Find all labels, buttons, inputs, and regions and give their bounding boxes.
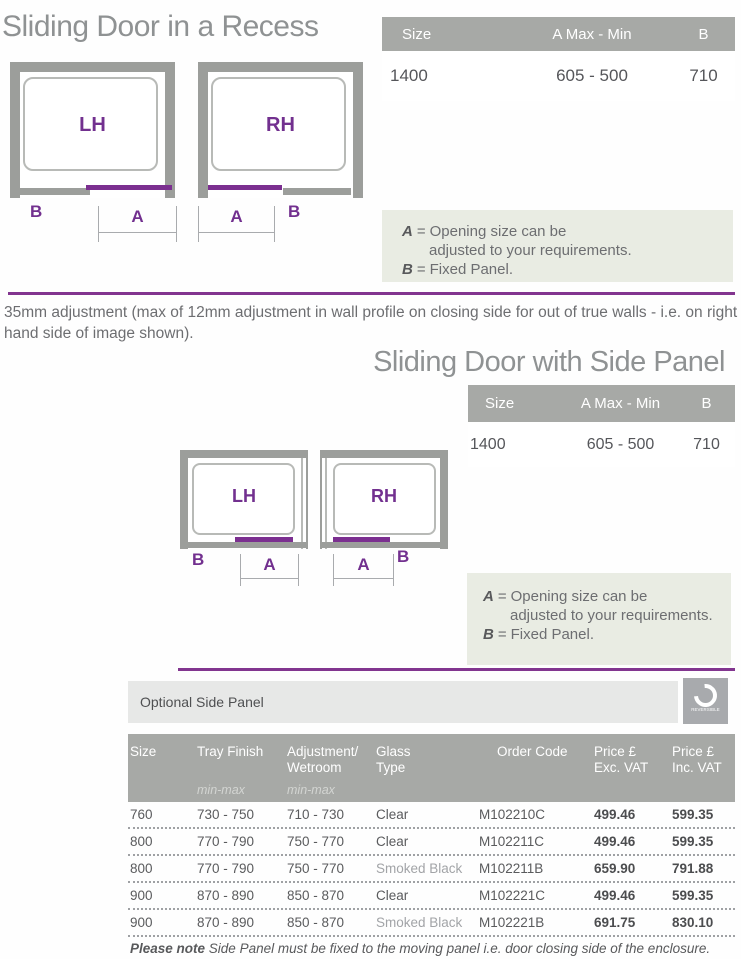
a-max-min-value: 605 - 500	[512, 66, 672, 86]
col-tray-finish: Tray Finishmin-max	[197, 744, 287, 802]
col-price-exc-vat: Price £Exc. VAT	[594, 744, 672, 802]
side-panel-size-table: Size A Max - Min B 1400 605 - 500 710	[468, 385, 735, 467]
sliding-door-bar	[208, 185, 282, 190]
size-value: 1400	[468, 436, 563, 454]
order-code-cell: M102210C	[479, 807, 594, 822]
size-cell: 800	[130, 834, 197, 849]
b-label: B	[30, 202, 42, 222]
note-a-text: Opening size can be	[430, 223, 567, 240]
tray-cell: 770 - 790	[197, 834, 287, 849]
a-label: A	[334, 555, 393, 575]
table-row: 900 870 - 890 850 - 870 Smoked Black M10…	[128, 910, 735, 937]
recess-size-table-header: Size A Max - Min B	[382, 17, 735, 51]
price-inc-cell: 599.35	[672, 834, 735, 849]
price-inc-cell: 830.10	[672, 915, 735, 930]
order-code-cell: M102211B	[479, 861, 594, 876]
key-a: A	[483, 588, 494, 605]
fixed-panel-bar	[20, 188, 90, 195]
a-label: A	[241, 555, 298, 575]
purple-divider	[178, 668, 735, 671]
fixed-panel-bar	[188, 542, 308, 548]
price-inc-cell: 791.88	[672, 861, 735, 876]
equals-sign: =	[498, 626, 507, 643]
table-row: 800 770 - 790 750 - 770 Smoked Black M10…	[128, 856, 735, 883]
note-line-a: A=Opening size can be	[402, 222, 733, 241]
col-a-max-min: A Max - Min	[563, 395, 678, 412]
sliding-door-bar	[333, 537, 390, 542]
col-b: B	[678, 395, 735, 412]
wall-top	[320, 450, 448, 458]
col-glass-type: GlassType	[376, 744, 479, 802]
tray-cell: 870 - 890	[197, 915, 287, 930]
footnote: Please note Side Panel must be fixed to …	[130, 941, 735, 956]
wall-top	[10, 62, 175, 72]
glass-cell: Smoked Black	[376, 915, 479, 930]
side-panel-size-table-header: Size A Max - Min B	[468, 385, 735, 422]
table-row: 1400 605 - 500 710	[468, 422, 735, 467]
fixed-panel-bar	[283, 188, 351, 195]
col-size: Size	[468, 395, 563, 412]
note-line-b: B=Fixed Panel.	[402, 260, 733, 279]
note-line-a: A=Opening size can be	[483, 587, 731, 606]
size-cell: 760	[130, 807, 197, 822]
glass-cell: Clear	[376, 888, 479, 903]
footnote-text: Side Panel must be fixed to the moving p…	[205, 941, 710, 956]
wall-top	[198, 62, 363, 72]
recess-diagrams: LH RH B A A B	[10, 62, 370, 244]
col-a-max-min: A Max - Min	[512, 26, 672, 43]
equals-sign: =	[417, 261, 426, 278]
a-dimension-line: A	[333, 554, 394, 586]
a-label: A	[199, 207, 274, 227]
minmax-sub: min-max	[197, 782, 245, 798]
side-panel-key-note: A=Opening size can be adjusted to your r…	[467, 573, 731, 665]
rh-label: RH	[198, 114, 363, 137]
col-b: B	[672, 26, 735, 43]
reversible-icon: REVERSIBLE	[683, 678, 728, 724]
a-dimension-line: A	[198, 206, 275, 242]
diagram-rh-side-panel: RH	[320, 450, 448, 549]
price-exc-cell: 659.90	[594, 861, 672, 876]
order-code-cell: M102211C	[479, 834, 594, 849]
diagram-rh-recess: RH	[198, 62, 363, 198]
key-b: B	[483, 626, 494, 643]
price-exc-cell: 499.46	[594, 807, 672, 822]
col-price-inc-vat: Price £Inc. VAT	[672, 744, 735, 802]
table-row: 900 870 - 890 850 - 870 Clear M102221C 4…	[128, 883, 735, 910]
note-b-text: Fixed Panel.	[430, 261, 513, 278]
table-row: 760 730 - 750 710 - 730 Clear M102210C 4…	[128, 802, 735, 829]
side-panel-diagrams: LH RH B A A B	[175, 448, 460, 593]
note-a-text: Opening size can be	[511, 588, 648, 605]
b-value: 710	[678, 436, 735, 454]
reversible-label: REVERSIBLE	[689, 708, 721, 712]
tray-cell: 870 - 890	[197, 888, 287, 903]
a-label: A	[99, 207, 176, 227]
a-dimension-line: A	[240, 554, 299, 586]
a-dimension-line: A	[98, 206, 177, 242]
diagram-lh-recess: LH	[10, 62, 175, 198]
order-code-cell: M102221C	[479, 888, 594, 903]
recess-size-table: Size A Max - Min B 1400 605 - 500 710	[382, 17, 735, 101]
glass-cell: Clear	[376, 834, 479, 849]
adjustment-cell: 850 - 870	[287, 888, 376, 903]
price-table-header: Size Tray Finishmin-max Adjustment/Wetro…	[128, 734, 735, 802]
diagram-lh-side-panel: LH	[180, 450, 308, 549]
adjustment-cell: 850 - 870	[287, 915, 376, 930]
table-row: 1400 605 - 500 710	[382, 51, 735, 101]
adjustment-cell: 750 - 770	[287, 861, 376, 876]
glass-cell: Clear	[376, 807, 479, 822]
size-cell: 900	[130, 915, 197, 930]
section-title-side-panel: Sliding Door with Side Panel	[370, 346, 725, 379]
price-exc-cell: 691.75	[594, 915, 672, 930]
note-line-b: B=Fixed Panel.	[483, 625, 731, 644]
col-adjustment-wetroom: Adjustment/Wetroommin-max	[287, 744, 376, 802]
note-line-a2: adjusted to your requirements.	[402, 241, 733, 260]
optional-side-panel-bar: Optional Side Panel	[128, 681, 678, 723]
adjustment-note: 35mm adjustment (max of 12mm adjustment …	[4, 302, 739, 344]
size-cell: 900	[130, 888, 197, 903]
key-b: B	[402, 261, 413, 278]
col-size: Size	[382, 26, 512, 43]
section-title-recess: Sliding Door in a Recess	[2, 10, 319, 44]
note-line-a2: adjusted to your requirements.	[483, 606, 731, 625]
note-b-text: Fixed Panel.	[511, 626, 594, 643]
equals-sign: =	[498, 588, 507, 605]
sliding-door-bar	[235, 537, 293, 542]
lh-label: LH	[180, 486, 308, 507]
b-label: B	[397, 547, 409, 567]
adjustment-cell: 750 - 770	[287, 834, 376, 849]
price-inc-cell: 599.35	[672, 807, 735, 822]
fixed-panel-bar	[320, 542, 440, 548]
sliding-door-bar	[86, 185, 172, 190]
size-cell: 800	[130, 861, 197, 876]
circular-arrow-icon	[689, 679, 721, 711]
minmax-sub: min-max	[287, 782, 335, 798]
price-exc-cell: 499.46	[594, 888, 672, 903]
optional-panel-price-table: Size Tray Finishmin-max Adjustment/Wetro…	[128, 734, 735, 937]
b-value: 710	[672, 66, 735, 86]
adjustment-cell: 710 - 730	[287, 807, 376, 822]
b-label: B	[192, 550, 204, 570]
footnote-bold: Please note	[130, 941, 205, 956]
rh-label: RH	[320, 486, 448, 507]
price-exc-cell: 499.46	[594, 834, 672, 849]
order-code-cell: M102221B	[479, 915, 594, 930]
glass-cell: Smoked Black	[376, 861, 479, 876]
price-inc-cell: 599.35	[672, 888, 735, 903]
purple-divider	[8, 292, 735, 295]
table-row: 800 770 - 790 750 - 770 Clear M102211C 4…	[128, 829, 735, 856]
wall-top	[180, 450, 308, 458]
size-value: 1400	[382, 66, 512, 86]
key-a: A	[402, 223, 413, 240]
equals-sign: =	[417, 223, 426, 240]
tray-cell: 770 - 790	[197, 861, 287, 876]
col-order-code: Order Code	[479, 744, 594, 802]
b-label: B	[288, 202, 300, 222]
col-size: Size	[130, 744, 197, 802]
a-max-min-value: 605 - 500	[563, 436, 678, 454]
recess-key-note: A=Opening size can be adjusted to your r…	[382, 210, 733, 282]
lh-label: LH	[10, 114, 175, 137]
catalog-page: Sliding Door in a Recess Size A Max - Mi…	[0, 0, 741, 959]
tray-cell: 730 - 750	[197, 807, 287, 822]
